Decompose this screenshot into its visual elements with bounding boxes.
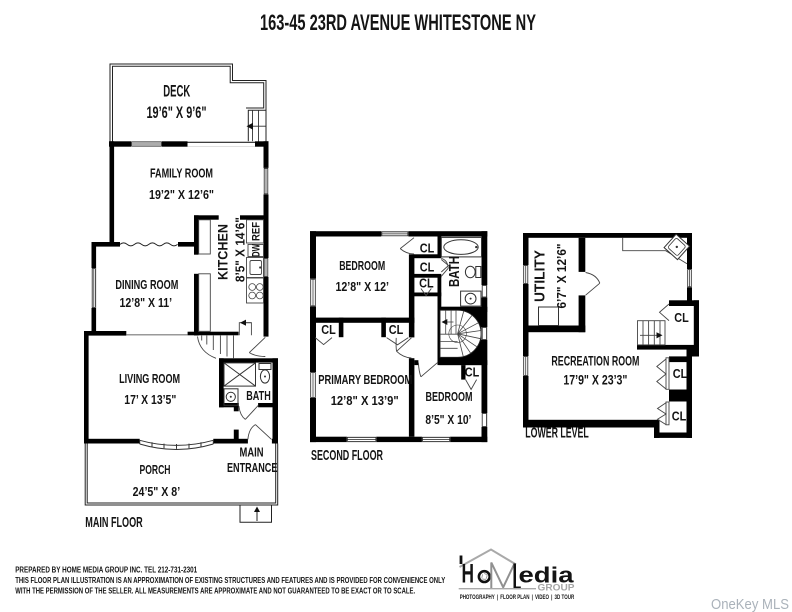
svg-text:CL: CL	[673, 366, 688, 381]
svg-text:REF: REF	[250, 222, 262, 241]
svg-text:BEDROOM: BEDROOM	[426, 390, 473, 404]
svg-text:KITCHEN: KITCHEN	[214, 224, 230, 280]
svg-text:6’7" X 12’6": 6’7" X 12’6"	[555, 243, 569, 308]
svg-text:BATH: BATH	[446, 256, 463, 287]
svg-text:17’9" X 23’3": 17’9" X 23’3"	[563, 372, 627, 387]
svg-text:WITH THE PERMISSION OF THE SEL: WITH THE PERMISSION OF THE SELLER. ALL M…	[15, 585, 415, 595]
svg-text:LOWER LEVEL: LOWER LEVEL	[525, 424, 589, 441]
svg-text:FAMILY ROOM: FAMILY ROOM	[150, 167, 213, 181]
svg-text:RECREATION ROOM: RECREATION ROOM	[551, 354, 639, 369]
svg-text:CL: CL	[674, 310, 689, 325]
svg-text:THIS FLOOR PLAN ILLUSTRATION I: THIS FLOOR PLAN ILLUSTRATION IS AN APPRO…	[15, 575, 445, 585]
svg-text:ENTRANCE: ENTRANCE	[227, 461, 278, 475]
svg-text:CL: CL	[420, 260, 435, 275]
svg-text:8’5" X 14’6": 8’5" X 14’6"	[234, 217, 248, 282]
svg-text:DECK: DECK	[163, 83, 190, 101]
svg-text:LIVING ROOM: LIVING ROOM	[119, 372, 180, 386]
svg-text:CL: CL	[389, 322, 404, 337]
svg-text:PHOTOGRAPHY | FLOOR PLAN |: PHOTOGRAPHY | FLOOR PLAN | VIDEO | 3D TO…	[460, 594, 575, 601]
svg-text:12’8" X 12’: 12’8" X 12’	[335, 280, 389, 294]
svg-text:PORCH: PORCH	[140, 463, 171, 477]
svg-text:CL: CL	[419, 275, 434, 290]
svg-text:MAIN FLOOR: MAIN FLOOR	[85, 514, 143, 531]
svg-text:24’5" X 8’: 24’5" X 8’	[133, 485, 181, 499]
svg-text:17’ X 13’5": 17’ X 13’5"	[124, 393, 176, 407]
svg-text:12’8" X 13’9": 12’8" X 13’9"	[331, 394, 399, 408]
svg-text:BEDROOM: BEDROOM	[339, 259, 385, 273]
svg-text:19’2" X 12’6": 19’2" X 12’6"	[149, 188, 214, 202]
svg-text:BATH: BATH	[246, 388, 271, 403]
svg-text:CL: CL	[420, 240, 435, 255]
svg-text:CL: CL	[465, 364, 480, 379]
svg-text:OneKey MLS: OneKey MLS	[711, 596, 789, 612]
svg-text:GROUP: GROUP	[538, 583, 575, 593]
svg-text:19’6" X 9’6": 19’6" X 9’6"	[147, 104, 207, 122]
svg-text:CL: CL	[321, 322, 336, 337]
svg-text:12’8" X 11’: 12’8" X 11’	[120, 296, 173, 310]
svg-text:8’5" X 10’: 8’5" X 10’	[425, 413, 471, 427]
svg-text:PREPARED BY HOME MEDIA GROUP I: PREPARED BY HOME MEDIA GROUP INC. TEL 21…	[15, 565, 197, 575]
svg-text:MAIN: MAIN	[240, 445, 264, 459]
svg-text:H: H	[462, 559, 475, 589]
svg-text:163-45 23RD AVENUE WHITESTONE: 163-45 23RD AVENUE WHITESTONE NY	[260, 10, 536, 35]
svg-text:DW: DW	[251, 244, 263, 257]
svg-text:CL: CL	[672, 409, 687, 424]
svg-text:SECOND FLOOR: SECOND FLOOR	[311, 447, 383, 464]
svg-text:PRIMARY BEDROOM: PRIMARY BEDROOM	[318, 373, 412, 387]
svg-text:UTILITY: UTILITY	[532, 250, 549, 302]
svg-text:DINING ROOM: DINING ROOM	[115, 278, 178, 292]
